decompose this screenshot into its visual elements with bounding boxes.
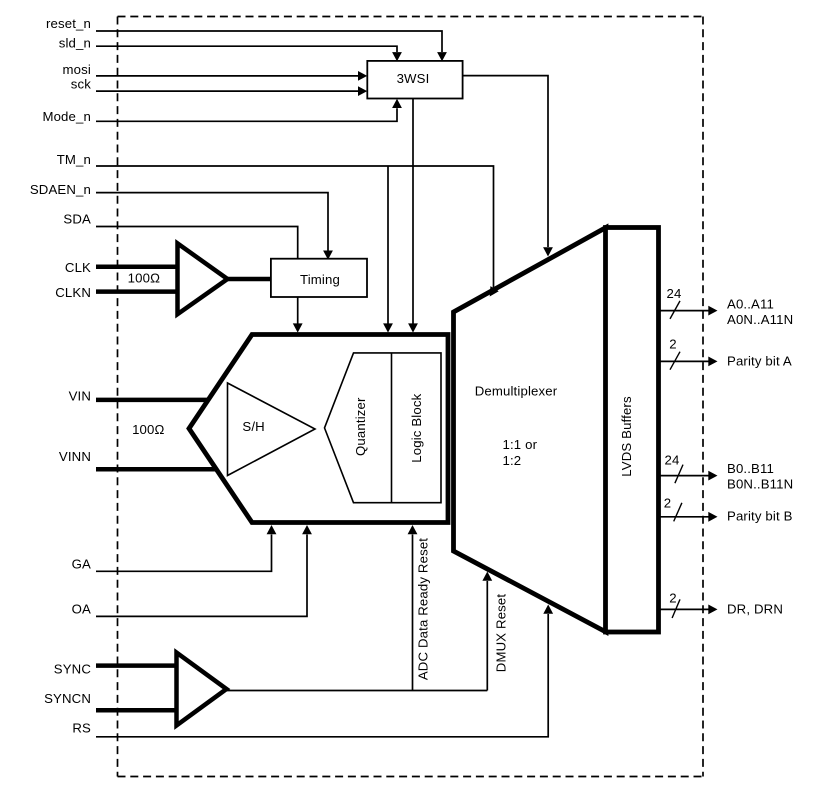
svg-text:mosi: mosi: [63, 62, 91, 77]
svg-text:Parity bit B: Parity bit B: [727, 508, 793, 523]
svg-text:Mode_n: Mode_n: [42, 109, 91, 124]
svg-text:SDAEN_n: SDAEN_n: [30, 182, 91, 197]
svg-text:100Ω: 100Ω: [128, 271, 160, 286]
svg-text:2: 2: [669, 590, 676, 605]
svg-text:RS: RS: [72, 721, 91, 736]
svg-text:sld_n: sld_n: [59, 36, 91, 51]
svg-text:24: 24: [665, 453, 680, 468]
svg-text:GA: GA: [72, 557, 91, 572]
svg-text:B0N..B11N: B0N..B11N: [727, 477, 793, 492]
svg-text:DMUX Reset: DMUX Reset: [493, 594, 508, 673]
svg-text:A0..A11: A0..A11: [727, 297, 774, 312]
svg-text:2: 2: [669, 337, 676, 352]
svg-text:1:2: 1:2: [503, 453, 522, 468]
svg-text:Parity bit A: Parity bit A: [727, 353, 792, 368]
svg-text:3WSI: 3WSI: [397, 71, 430, 86]
svg-text:VINN: VINN: [59, 449, 91, 464]
svg-text:OA: OA: [72, 602, 91, 617]
svg-text:reset_n: reset_n: [46, 16, 91, 31]
svg-text:SYNCN: SYNCN: [44, 691, 91, 706]
svg-text:1:1 or: 1:1 or: [503, 437, 538, 452]
svg-text:24: 24: [667, 286, 682, 301]
svg-text:Logic Block: Logic Block: [409, 393, 424, 462]
svg-text:TM_n: TM_n: [57, 152, 91, 167]
svg-text:Demultiplexer: Demultiplexer: [475, 383, 558, 398]
svg-text:100Ω: 100Ω: [132, 422, 164, 437]
svg-text:sck: sck: [71, 77, 91, 92]
svg-text:2: 2: [664, 496, 671, 511]
svg-text:CLKN: CLKN: [55, 285, 91, 300]
svg-text:Quantizer: Quantizer: [353, 397, 368, 456]
svg-text:A0N..A11N: A0N..A11N: [727, 312, 793, 327]
svg-text:VIN: VIN: [69, 388, 91, 403]
svg-text:SYNC: SYNC: [54, 661, 92, 676]
svg-text:DR, DRN: DR, DRN: [727, 601, 783, 616]
svg-text:LVDS Buffers: LVDS Buffers: [619, 396, 634, 477]
svg-text:B0..B11: B0..B11: [727, 461, 774, 476]
svg-text:ADC Data Ready Reset: ADC Data Ready Reset: [415, 538, 430, 680]
svg-text:Timing: Timing: [300, 272, 340, 287]
svg-text:CLK: CLK: [65, 260, 91, 275]
svg-text:SDA: SDA: [63, 212, 91, 227]
svg-text:S/H: S/H: [242, 419, 264, 434]
